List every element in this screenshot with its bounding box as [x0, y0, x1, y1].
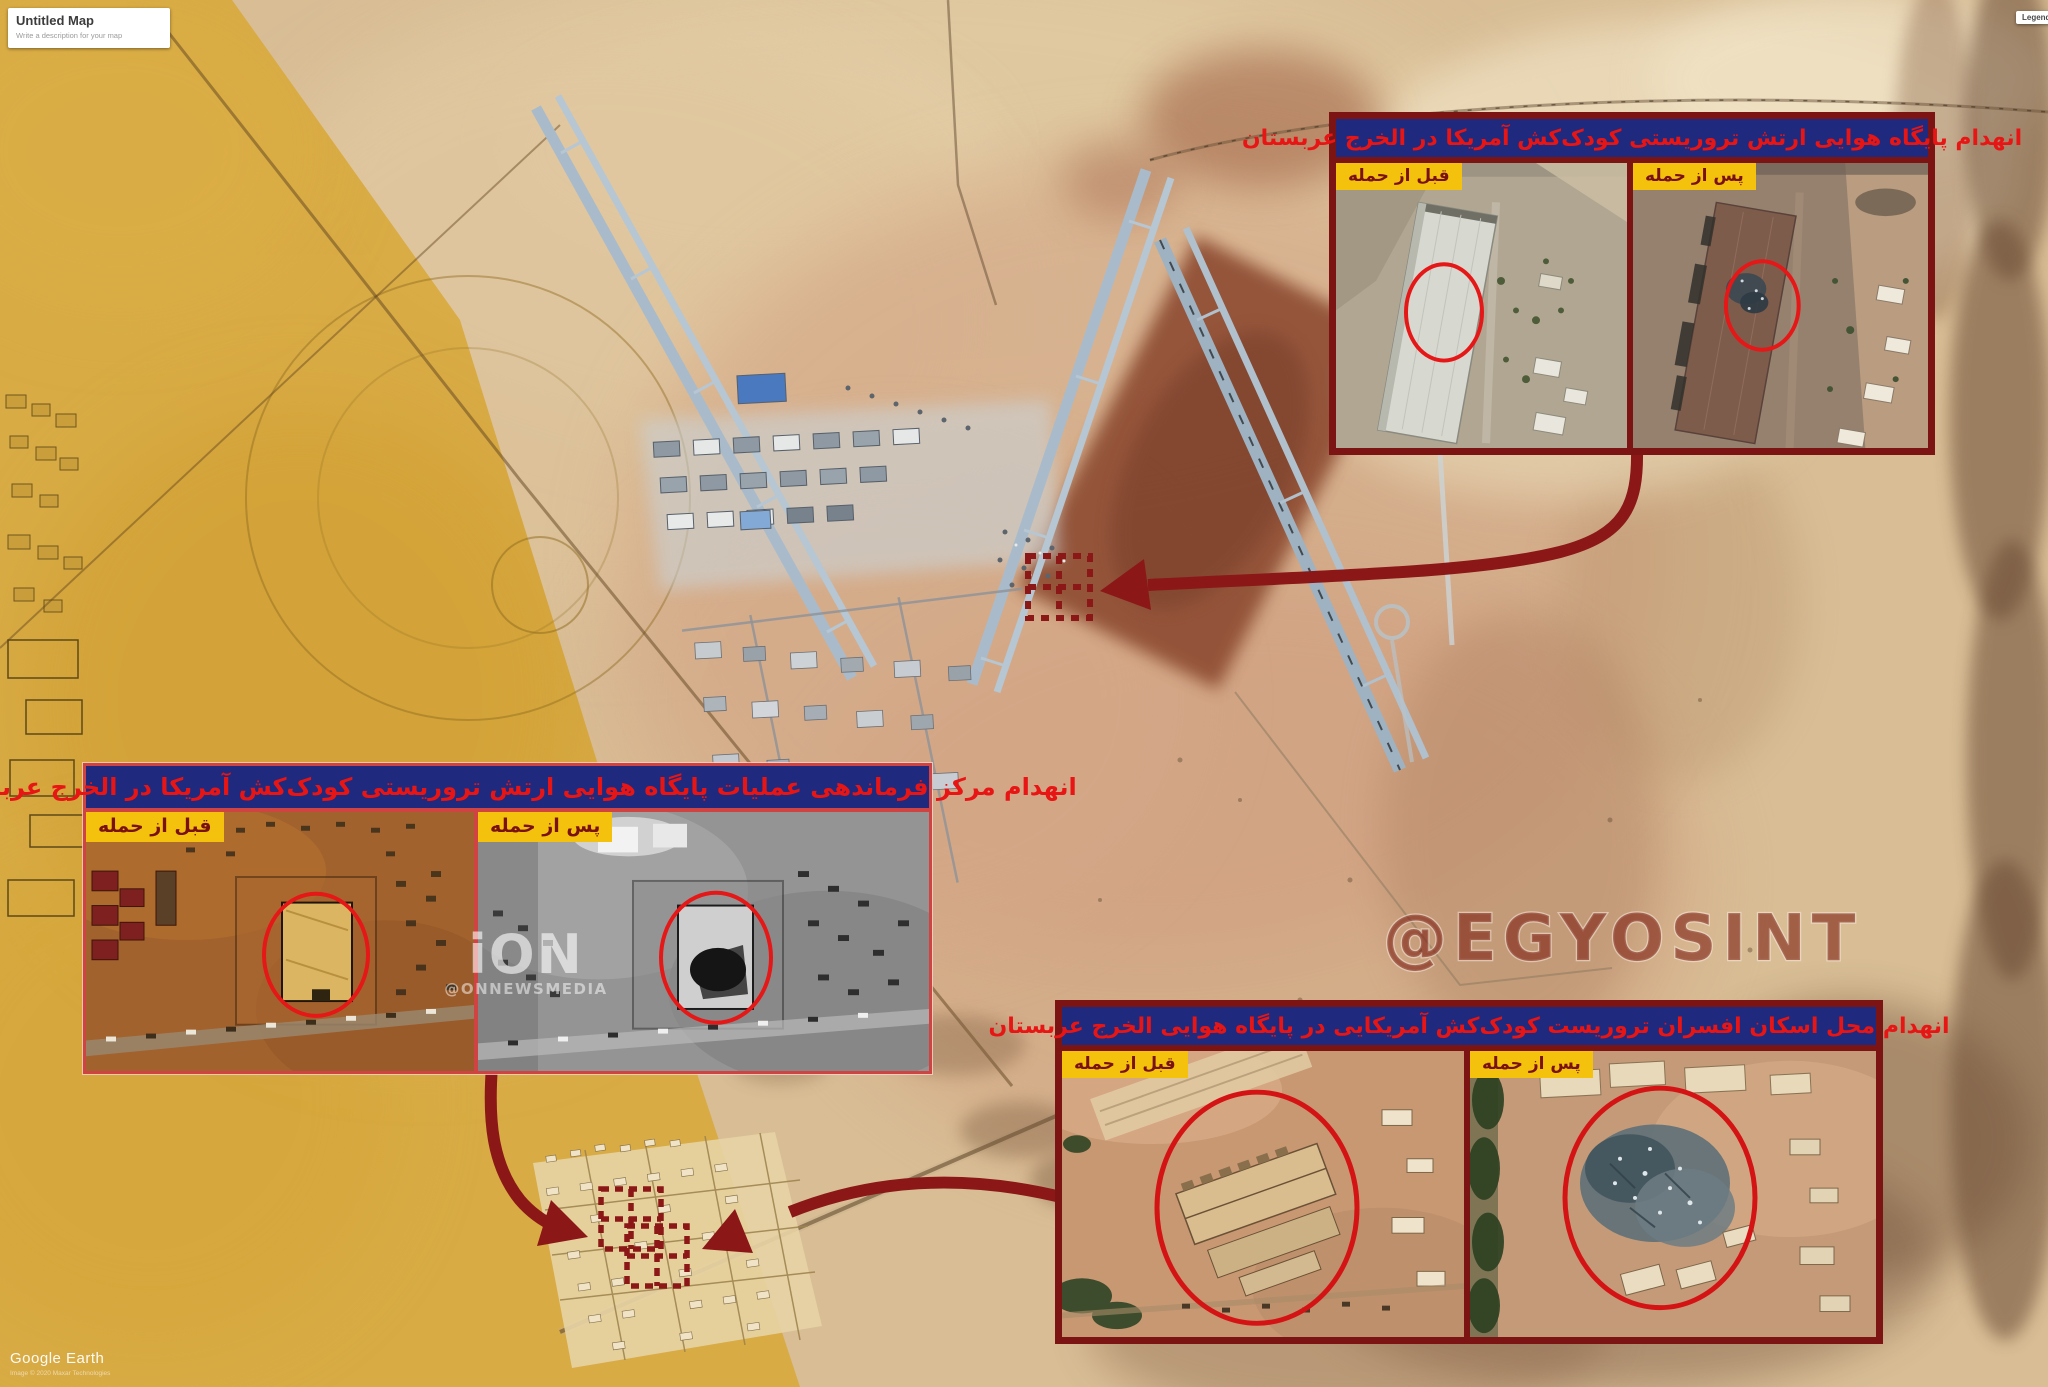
before-attack-label: قبل از حمله: [1062, 1051, 1188, 1078]
inset-airbase: انهدام پایگاه هوایی ارتش تروریستی کودک‌ک…: [1329, 112, 1935, 455]
inset-housing-after-image: پس از حمله: [1470, 1051, 1876, 1337]
inset-officers-housing: انهدام محل اسکان افسران تروریست کودک‌کش …: [1055, 1000, 1883, 1344]
inset-officers-housing-title: انهدام محل اسکان افسران تروریست کودک‌کش …: [1062, 1007, 1876, 1045]
map-title: Untitled Map: [16, 13, 162, 29]
inset-airbase-title: انهدام پایگاه هوایی ارتش تروریستی کودک‌ک…: [1336, 119, 1928, 157]
attribution-text: Image © 2020 Maxar Technologies: [10, 1370, 110, 1377]
after-attack-label: پس از حمله: [1633, 163, 1756, 190]
after-attack-label: پس از حمله: [478, 812, 612, 842]
map-subtitle: Write a description for your map: [16, 31, 162, 40]
inset-command-center: انهدام مرکز فرماندهی عملیات پایگاه هوایی…: [83, 763, 932, 1074]
before-attack-label: قبل از حمله: [86, 812, 224, 842]
legend-button[interactable]: Legend: [2016, 11, 2048, 24]
inset-housing-before-image: قبل از حمله: [1062, 1051, 1464, 1337]
before-attack-label: قبل از حمله: [1336, 163, 1462, 190]
inset-command-before-image: قبل از حمله: [86, 812, 474, 1071]
after-attack-label: پس از حمله: [1470, 1051, 1593, 1078]
inset-command-after-image: پس از حمله: [478, 812, 929, 1071]
inset-airbase-before-image: قبل از حمله: [1336, 163, 1627, 448]
housing-compound: [533, 1124, 822, 1368]
inset-command-center-title: انهدام مرکز فرماندهی عملیات پایگاه هوایی…: [86, 766, 929, 808]
inset-airbase-after-image: پس از حمله: [1633, 163, 1928, 448]
untitled-map-card[interactable]: Untitled Map Write a description for you…: [8, 8, 170, 48]
google-earth-logo: Google Earth: [10, 1350, 110, 1367]
google-earth-attribution: Google Earth Image © 2020 Maxar Technolo…: [10, 1350, 110, 1377]
